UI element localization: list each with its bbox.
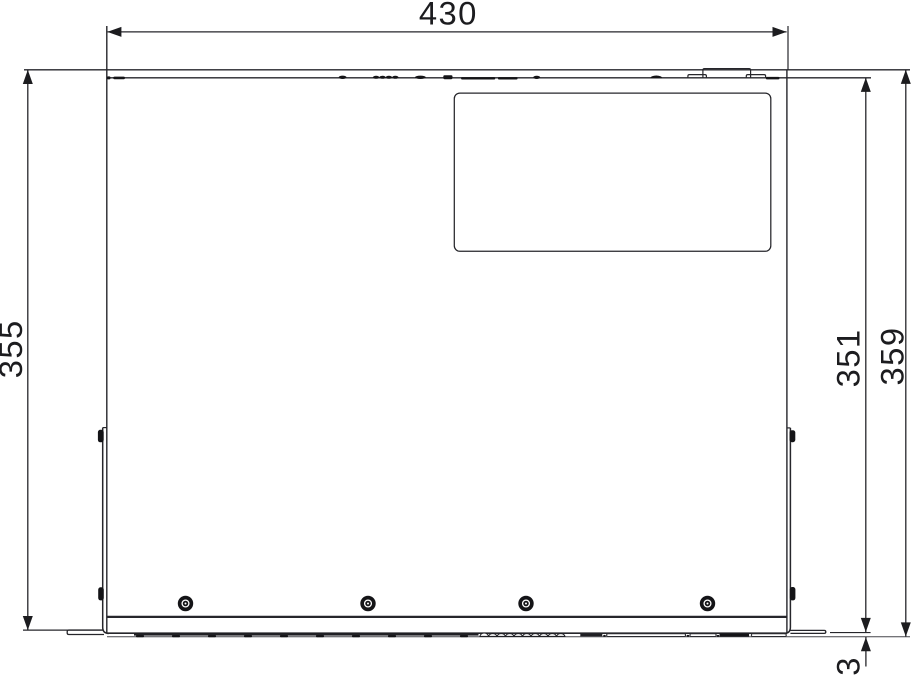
svg-text:430: 430 — [419, 0, 478, 32]
svg-text:355: 355 — [0, 319, 29, 378]
svg-text:359: 359 — [874, 327, 911, 386]
svg-text:351: 351 — [830, 328, 867, 387]
svg-text:3: 3 — [830, 656, 867, 675]
